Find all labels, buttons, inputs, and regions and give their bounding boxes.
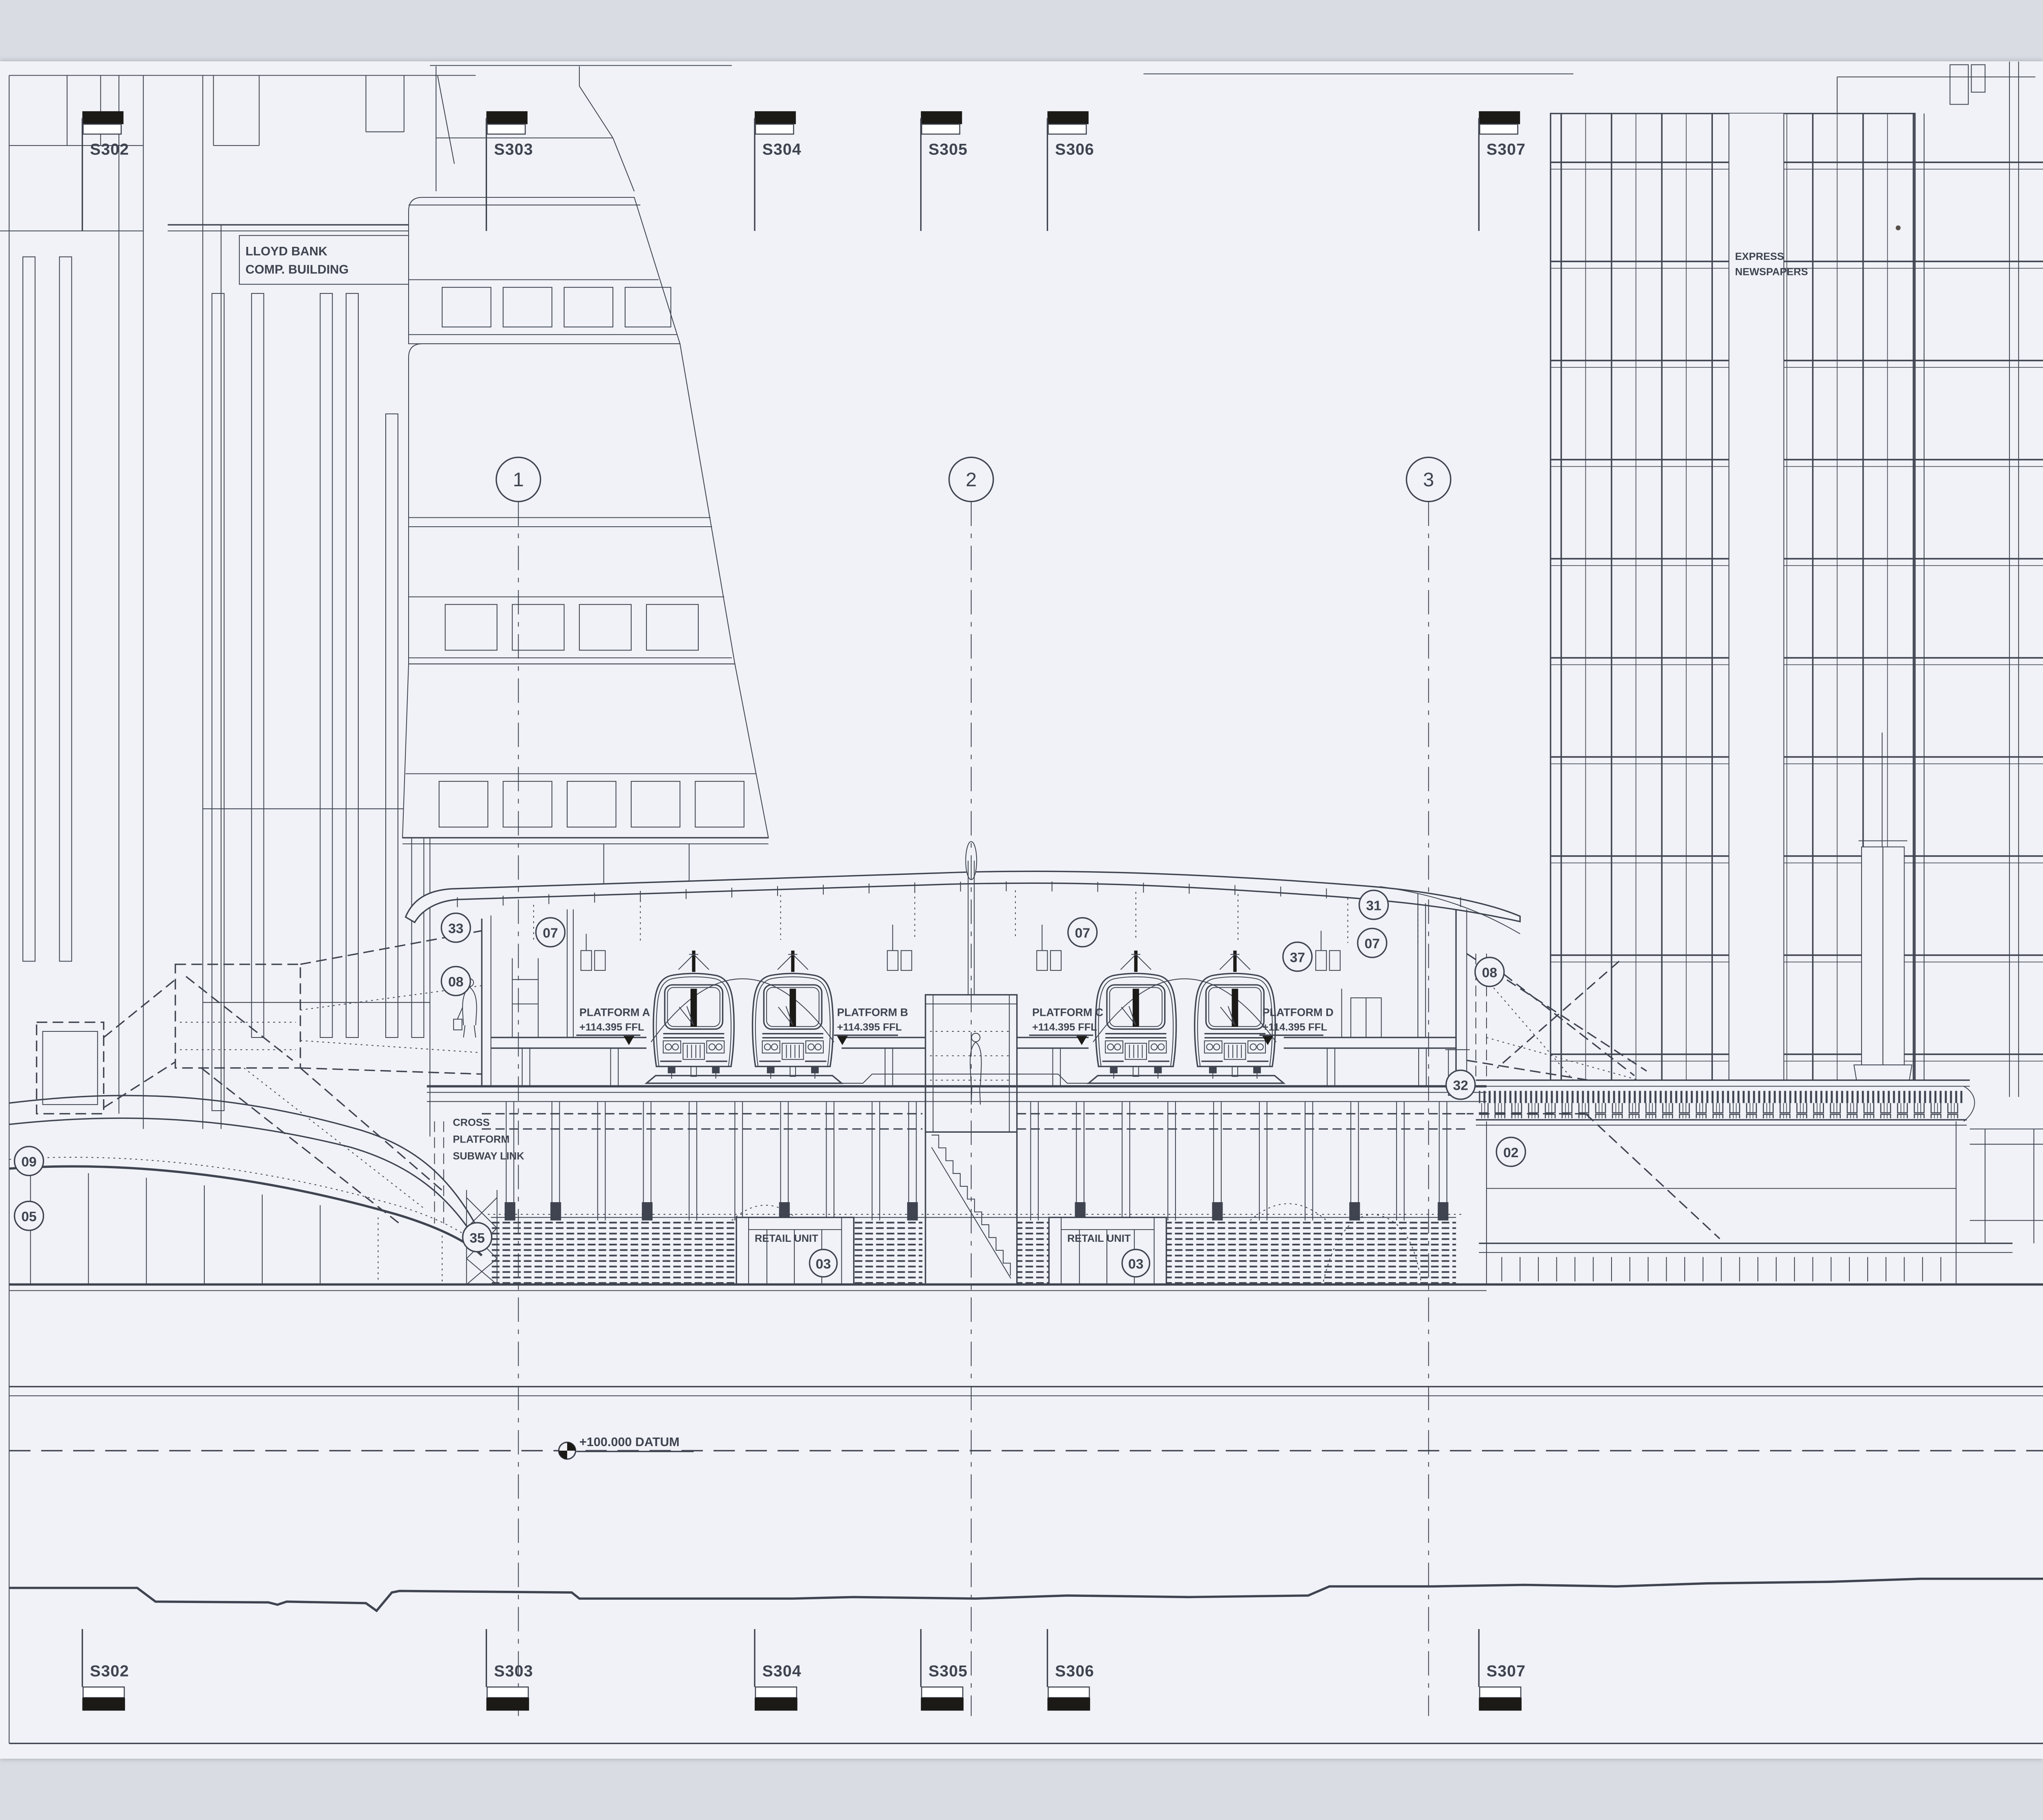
- svg-text:07: 07: [1365, 936, 1380, 951]
- section-markers-bottom: S302 S303 S304 S305 S306 S307: [82, 1629, 1526, 1710]
- ref-mark-35: 35: [463, 1223, 492, 1252]
- section-bottom-s305: S305: [928, 1662, 968, 1680]
- platform-level: +114.395 FFL: [579, 1022, 644, 1033]
- building-far-left: [0, 75, 143, 1129]
- retail-unit-2: RETAIL UNIT: [1049, 1217, 1166, 1284]
- svg-text:09: 09: [21, 1154, 36, 1169]
- platform-name: PLATFORM A: [579, 1006, 650, 1018]
- ground-and-datum: +100.000 DATUM: [9, 1284, 2043, 1611]
- platform-level: +114.395 FFL: [837, 1022, 902, 1033]
- section-top-s303: S303: [494, 141, 533, 158]
- svg-text:31: 31: [1366, 898, 1381, 913]
- svg-text:33: 33: [448, 921, 463, 936]
- ref-mark-07-mid: 07: [1068, 918, 1097, 947]
- station-roof: [406, 841, 1520, 946]
- ref-mark-03-left: 03: [809, 1249, 837, 1277]
- section-bottom-s306: S306: [1055, 1662, 1094, 1680]
- lloyd-bank-label-line1: LLOYD BANK: [246, 244, 327, 258]
- retail-unit-2-label: RETAIL UNIT: [1067, 1233, 1131, 1244]
- ref-mark-33: 33: [441, 913, 470, 942]
- ref-mark-31: 31: [1359, 890, 1388, 919]
- building-express-newspapers: EXPRESS NEWSPAPERS: [1551, 113, 1915, 1097]
- svg-text:07: 07: [1075, 926, 1090, 941]
- section-top-s306: S306: [1055, 141, 1094, 158]
- svg-text:37: 37: [1290, 950, 1305, 965]
- platform-name: PLATFORM B: [837, 1006, 908, 1018]
- express-label-line2: NEWSPAPERS: [1735, 266, 1808, 277]
- svg-text:03: 03: [816, 1257, 831, 1272]
- ref-mark-08-left: 08: [441, 966, 470, 995]
- train-a: [653, 950, 734, 1078]
- platform-d-label: PLATFORM D +114.395 FFL: [1259, 1006, 1334, 1045]
- svg-text:05: 05: [21, 1209, 36, 1224]
- platform-a-label: PLATFORM A +114.395 FFL: [576, 1006, 650, 1045]
- ref-mark-09: 09: [14, 1146, 43, 1175]
- svg-text:07: 07: [543, 926, 558, 941]
- svg-text:03: 03: [1128, 1257, 1143, 1272]
- section-top-s307: S307: [1486, 141, 1526, 158]
- station-structure: RETAIL UNIT RETAIL UNIT: [427, 861, 1586, 1284]
- section-top-s304: S304: [762, 141, 802, 158]
- scan-speck: [1896, 225, 1901, 230]
- train-behind-arc: [651, 979, 834, 1042]
- platform-level: +114.395 FFL: [1263, 1022, 1328, 1033]
- drawing-sheet: LLOYD BANK COMP. BUILDING EXPRESS NEWSPA…: [0, 61, 2043, 1759]
- background-window-grid: [1970, 1129, 2043, 1243]
- datum-label: +100.000 DATUM: [579, 1435, 680, 1449]
- retail-level: RETAIL UNIT RETAIL UNIT: [491, 1132, 1456, 1284]
- cross-platform-link-line2: PLATFORM: [453, 1134, 510, 1145]
- ref-mark-08-right: 08: [1475, 957, 1504, 986]
- section-top-s302: S302: [90, 141, 129, 158]
- platform-name: PLATFORM C: [1032, 1006, 1103, 1018]
- section-bottom-s304: S304: [762, 1662, 802, 1680]
- building-02: [1476, 1080, 2043, 1284]
- ref-mark-02: 02: [1496, 1137, 1525, 1166]
- grid-bubble-1-label: 1: [513, 469, 524, 491]
- section-markers-top: S302 S303 S304 S305 S306 S307: [82, 111, 1526, 231]
- platform-c-label: PLATFORM C +114.395 FFL: [1029, 1006, 1104, 1045]
- cross-platform-link-line1: CROSS: [453, 1117, 490, 1128]
- section-bottom-s303: S303: [494, 1662, 533, 1680]
- ref-mark-37: 37: [1283, 942, 1312, 971]
- train-b: [753, 950, 833, 1078]
- platform-level: +114.395 FFL: [1032, 1022, 1097, 1033]
- track-bed-2: [1089, 1075, 1284, 1083]
- ref-mark-07-right: 07: [1358, 928, 1387, 957]
- building-stepped-tower: [402, 66, 769, 885]
- express-label-line1: EXPRESS: [1735, 251, 1784, 262]
- svg-text:08: 08: [448, 975, 463, 990]
- grid-bubble-2-label: 2: [966, 469, 977, 491]
- section-bottom-s307: S307: [1486, 1662, 1526, 1680]
- retail-unit-1-label: RETAIL UNIT: [755, 1233, 818, 1244]
- grid-bubble-3-label: 3: [1423, 469, 1434, 491]
- platform-b-label: PLATFORM B +114.395 FFL: [834, 1006, 908, 1045]
- section-top-s305: S305: [928, 141, 968, 158]
- svg-text:08: 08: [1482, 965, 1497, 980]
- track-bed-1: [646, 1075, 842, 1083]
- terrain-line: [9, 1579, 2043, 1610]
- svg-text:02: 02: [1503, 1145, 1518, 1160]
- left-ramps: [9, 1096, 482, 1284]
- train-c: [1095, 950, 1176, 1078]
- datum-symbol: [559, 1442, 576, 1459]
- train-behind-arc: [1093, 979, 1276, 1042]
- svg-text:32: 32: [1453, 1078, 1468, 1093]
- ref-mark-07-left: 07: [536, 918, 565, 947]
- svg-text:35: 35: [469, 1230, 485, 1245]
- retail-unit-1: RETAIL UNIT: [736, 1217, 854, 1284]
- lloyd-bank-label-line2: COMP. BUILDING: [246, 262, 349, 276]
- ref-mark-03-right: 03: [1122, 1249, 1149, 1277]
- station-section-drawing: LLOYD BANK COMP. BUILDING EXPRESS NEWSPA…: [0, 61, 2043, 1759]
- ref-mark-05: 05: [14, 1201, 43, 1230]
- ref-mark-32: 32: [1446, 1070, 1475, 1099]
- section-bottom-s302: S302: [90, 1662, 129, 1680]
- platform-name: PLATFORM D: [1263, 1006, 1334, 1018]
